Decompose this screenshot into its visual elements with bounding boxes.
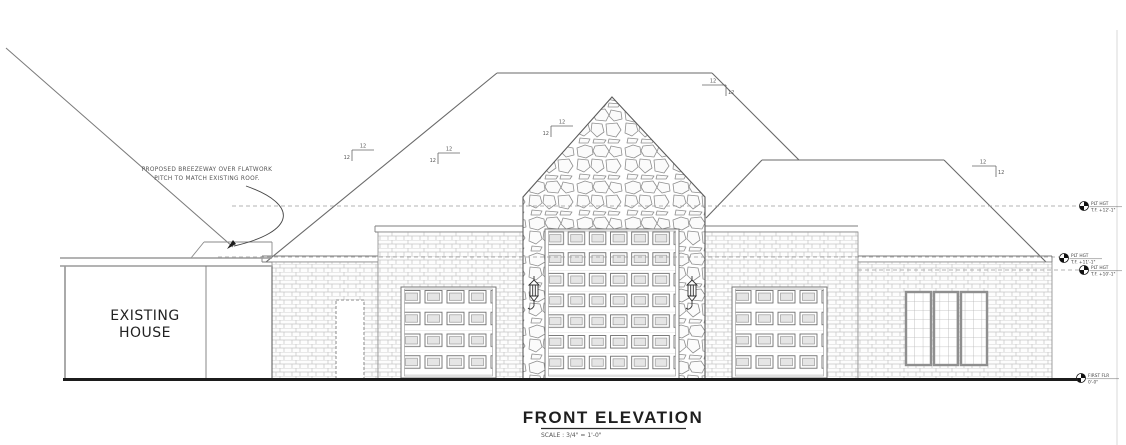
- breezeway-note: PROPOSED BREEZEWAY OVER FLATWORK PITCH T…: [142, 167, 284, 249]
- pitch-symbol-icon: [352, 150, 374, 161]
- center-garage-door: [545, 229, 679, 379]
- elevation-value: 0'-0": [1088, 380, 1098, 386]
- pitch-run-label: 12: [446, 147, 452, 153]
- triple-window: [906, 292, 987, 365]
- breezeway-leader-line: [234, 186, 283, 246]
- pitch-rise-label: 12: [543, 131, 549, 137]
- pitch-run-label: 12: [360, 144, 366, 150]
- pitch-marker-2: 12 12: [430, 147, 460, 165]
- window-right: [961, 292, 987, 365]
- elevation-marker-plt-hgt-low: PLT HGT T.F. +10'-1": [1080, 265, 1123, 278]
- title-block: FRONT ELEVATION SCALE : 3/4" = 1'-0": [523, 408, 704, 439]
- pitch-rise-label: 12: [430, 158, 436, 164]
- elevation-markers: PLT HGT T.F. +12'-1" PLT HGT T.F. +11'-1…: [1060, 201, 1123, 386]
- existing-house-fascia: [60, 258, 272, 266]
- pitch-rise-label: 12: [998, 170, 1004, 176]
- left-garage-door: [401, 287, 496, 378]
- elevation-label: PLT HGT: [1071, 253, 1089, 259]
- elevation-drawing: EXISTING HOUSE PROPOSED BREEZEWAY OVER F…: [0, 0, 1126, 445]
- pitch-marker-5: 12 12: [972, 160, 1004, 178]
- pitch-rise-label: 12: [728, 90, 734, 96]
- elevation-sheet: EXISTING HOUSE PROPOSED BREEZEWAY OVER F…: [0, 0, 1126, 445]
- breezeway-leader-arrow-icon: [227, 240, 236, 249]
- main-roof-right-slope: [712, 73, 799, 160]
- elevation-label: FIRST FLR: [1088, 373, 1109, 379]
- pitch-run-label: 12: [980, 160, 986, 166]
- pitch-marker-3: 12 12: [543, 120, 573, 138]
- drawing-title: FRONT ELEVATION: [523, 408, 704, 427]
- right-wing-left-hip: [706, 160, 762, 218]
- right-garage-door: [732, 287, 827, 378]
- pitch-marker-1: 12 12: [344, 144, 374, 162]
- existing-house: EXISTING HOUSE: [60, 258, 272, 379]
- elevation-label: PLT HGT: [1091, 201, 1109, 207]
- right-wing-right-hip: [944, 160, 1046, 262]
- breezeway-note-line2: PITCH TO MATCH EXISTING ROOF.: [154, 176, 260, 182]
- pitch-symbol-icon: [702, 85, 726, 96]
- drawing-scale: SCALE : 3/4" = 1'-0": [541, 432, 602, 439]
- window-center: [934, 292, 958, 365]
- pitch-rise-label: 12: [344, 155, 350, 161]
- pitch-symbol-icon: [551, 126, 573, 137]
- elevation-value: T.F. +10'-1": [1090, 272, 1116, 278]
- breezeway-note-line1: PROPOSED BREEZEWAY OVER FLATWORK: [142, 167, 273, 173]
- existing-house-label-line1: EXISTING: [110, 308, 179, 324]
- elevation-marker-plt-hgt-mid: PLT HGT T.F. +11'-1": [1060, 253, 1103, 266]
- elevation-marker-plt-hgt-top: PLT HGT T.F. +12'-1": [1080, 201, 1123, 214]
- existing-roof-line: [6, 48, 233, 247]
- pitch-marker-4: 12 12: [702, 79, 734, 97]
- elevation-label: PLT HGT: [1091, 265, 1109, 271]
- elevation-value: T.F. +11'-1": [1070, 260, 1096, 266]
- elevation-marker-first-floor: FIRST FLR 0'-0": [1077, 373, 1120, 386]
- proposed-door-opening: [336, 300, 364, 379]
- pitch-markers: 12 12 12 12 12 12 12 12 12 12: [344, 79, 1005, 178]
- window-left: [906, 292, 931, 365]
- pitch-symbol-icon: [438, 153, 460, 164]
- pitch-run-label: 12: [710, 79, 716, 85]
- pitch-symbol-icon: [972, 166, 996, 177]
- elevation-value: T.F. +12'-1": [1090, 208, 1116, 214]
- existing-house-label-line2: HOUSE: [119, 325, 171, 341]
- pitch-run-label: 12: [559, 120, 565, 126]
